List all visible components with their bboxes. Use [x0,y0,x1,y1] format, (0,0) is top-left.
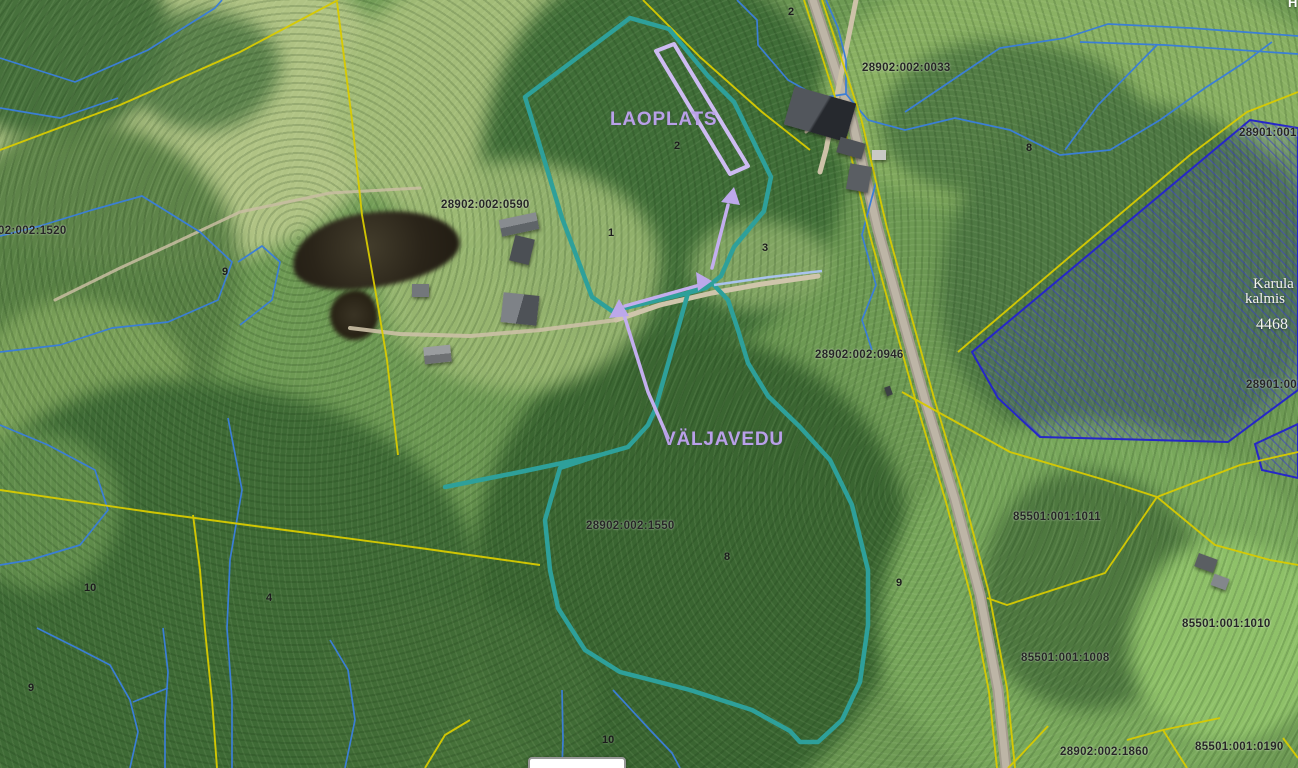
place-number: 4468 [1256,316,1288,334]
lot-number: 9 [28,682,34,694]
parcel-label: 28902:002:1860 [1060,746,1149,758]
parcel-label: 28901:001:01 [1239,127,1298,139]
parcel-label: 85501:001:1011 [1013,511,1101,523]
annotation-laoplats: LAOPLATS [610,109,717,131]
route-line [712,205,728,268]
lot-number: 4 [266,592,272,604]
place-name-line2: kalmis [1245,291,1285,308]
parcel-label: 28902:002:0946 [815,349,904,361]
arrow-upright-icon [721,187,740,205]
parcel-label: 85501:001:1008 [1021,652,1110,664]
building [412,284,429,297]
highlight-spur-line [445,455,600,487]
parcel-label: 85501:001:0190 [1195,741,1284,753]
parcel-label: 28901:001:0 [1246,379,1298,391]
lot-number: 9 [222,266,228,278]
parcel-label: 28902:002:0033 [862,62,951,74]
clipped-popup-box [528,757,626,768]
annotation-valjavedu: VÄLJAVEDU [663,429,784,451]
aerial-cadastral-map[interactable]: 28902:002:0033 28902:002:0590 28902:002:… [0,0,1298,768]
lot-number: 8 [724,551,730,563]
lot-number: 10 [84,582,96,594]
parcel-label: 85501:001:1010 [1182,618,1271,630]
lot-number: 3 [762,242,768,254]
lot-number: 2 [674,140,680,152]
building [423,345,452,365]
lot-number: 10 [602,734,614,746]
edge-glyph: H [1288,0,1297,10]
route-line [624,315,668,438]
lot-number: 8 [1026,142,1032,154]
parcel-label: 28902:002:1550 [586,520,675,532]
highlight-polygon-laoplats [525,18,771,311]
building [872,150,886,160]
lot-number: 2 [788,6,794,18]
lot-number: 1 [608,227,614,239]
parcel-label: 28902:002:0590 [441,199,530,211]
lot-number: 9 [896,577,902,589]
building [846,163,872,192]
parcel-label: 02:002:1520 [0,225,67,237]
building [501,292,540,326]
